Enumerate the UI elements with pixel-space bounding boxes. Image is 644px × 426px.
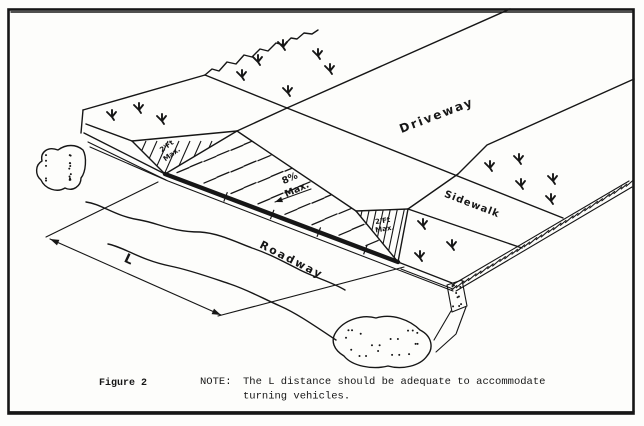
sidewalk-edges	[86, 75, 563, 248]
left-cut-face	[37, 110, 86, 190]
torn-band-right	[451, 179, 634, 291]
l-dimension	[46, 182, 404, 316]
flare-right-label-line2: Max.	[375, 224, 395, 235]
rubble-mound-dots	[45, 154, 72, 182]
sidewalk-label: Sidewalk	[443, 189, 502, 220]
driveway-ramp-diagram: Driveway Sidewalk Roadway 8% Max. 2'Ft M…	[0, 0, 644, 426]
driveway-label: Driveway	[397, 95, 475, 136]
torn-band-hatching	[451, 179, 634, 290]
pavement-break-dots	[345, 329, 419, 357]
note-prefix: NOTE:	[200, 376, 232, 388]
l-dimension-label: L	[122, 251, 136, 268]
figure-border	[9, 10, 635, 414]
curb-lines	[84, 133, 466, 352]
roadway-label: Roadway	[258, 238, 326, 281]
figure-2-drawing: Driveway Sidewalk Roadway 8% Max. 2'Ft M…	[0, 0, 644, 426]
curb-end-face	[447, 280, 467, 312]
note-line-1: The L distance should be adequate to acc…	[243, 376, 545, 388]
figure-caption: Figure 2	[99, 377, 147, 389]
l-dimension-line	[50, 239, 221, 315]
pavement-break-blob	[333, 316, 431, 367]
l-extension-lines	[46, 182, 404, 316]
note-line-2: turning vehicles.	[243, 391, 350, 403]
rubble-mound	[37, 146, 86, 191]
